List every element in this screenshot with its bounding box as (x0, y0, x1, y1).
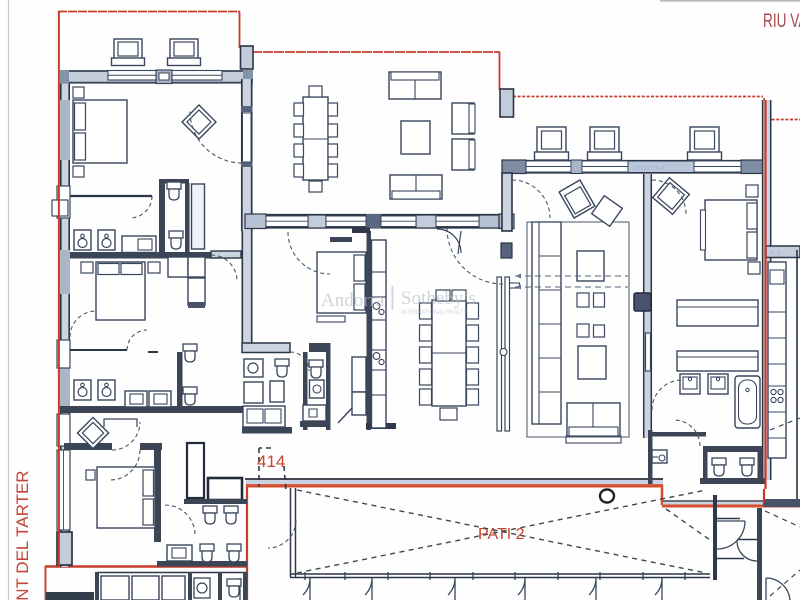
svg-text:ONT DEL TARTER: ONT DEL TARTER (13, 470, 32, 600)
svg-text:INTERNATIONAL REALTY: INTERNATIONAL REALTY (401, 309, 468, 316)
svg-text:Andorra: Andorra (321, 290, 385, 311)
svg-text:RIU VAL: RIU VAL (763, 11, 800, 32)
svg-text:414: 414 (257, 452, 285, 471)
svg-text:f n s r c rr d: f n s r c rr d (636, 166, 664, 172)
svg-text:Sotheby’s: Sotheby’s (401, 288, 476, 309)
svg-text:3 . 5: 3 . 5 (770, 251, 781, 257)
